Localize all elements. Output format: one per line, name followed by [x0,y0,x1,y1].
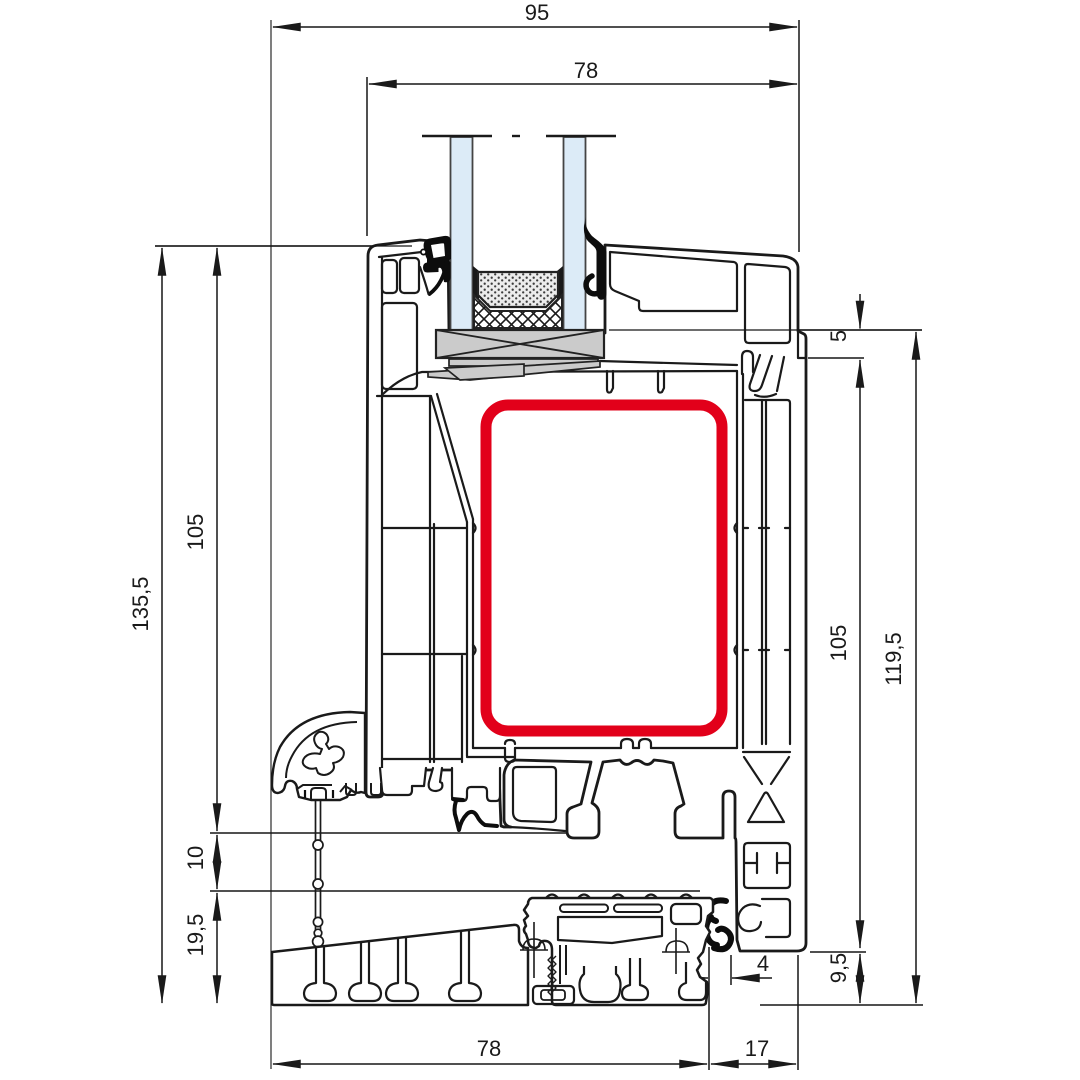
svg-text:119,5: 119,5 [881,632,906,685]
svg-text:105: 105 [183,514,208,551]
svg-text:4: 4 [757,951,769,976]
svg-text:78: 78 [574,58,598,83]
svg-text:10: 10 [183,846,208,870]
svg-text:5: 5 [826,330,851,342]
svg-text:135,5: 135,5 [128,576,153,631]
svg-text:17: 17 [745,1036,769,1061]
svg-text:105: 105 [826,625,851,662]
svg-text:19,5: 19,5 [183,914,208,957]
svg-text:78: 78 [477,1036,501,1061]
svg-text:95: 95 [525,0,549,25]
svg-text:9,5: 9,5 [826,953,851,984]
